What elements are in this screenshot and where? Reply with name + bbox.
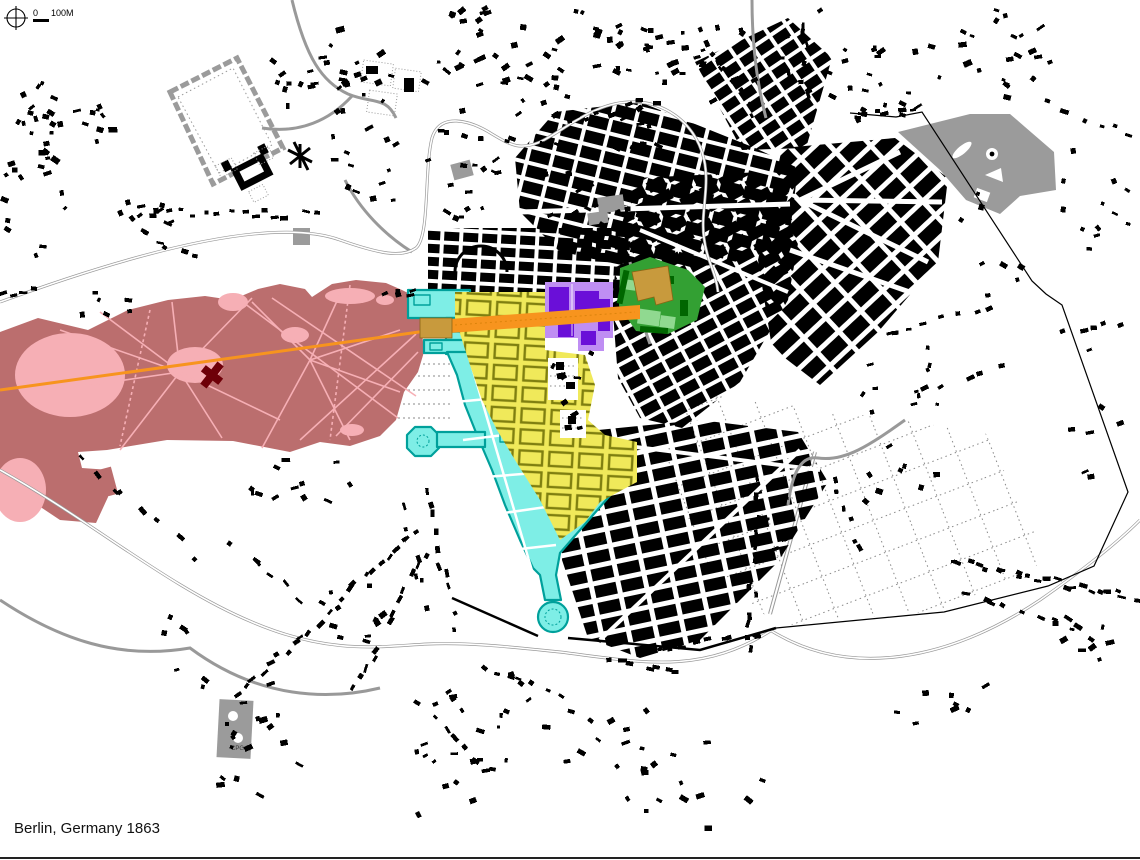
map-caption: Berlin, Germany 1863 — [14, 820, 160, 837]
figure-bottom-rule — [0, 857, 1140, 859]
scale-zero-label: 0 — [33, 8, 38, 18]
gate-plaza — [420, 318, 452, 338]
octagon-gate-plaza — [407, 427, 439, 456]
map-figure: CPG — [0, 0, 1140, 860]
scale-bar-segment — [33, 19, 49, 22]
scale-bar: 0 100M — [0, 0, 78, 30]
star-plaza — [288, 142, 312, 170]
rondel-gate-plaza — [538, 602, 568, 632]
walled-park-northwest — [170, 58, 474, 245]
north-compass-icon — [4, 6, 28, 30]
city-map-figure: CPG — [0, 0, 1140, 860]
large-park-west — [0, 280, 424, 523]
scale-distance-label: 100M — [51, 8, 74, 18]
